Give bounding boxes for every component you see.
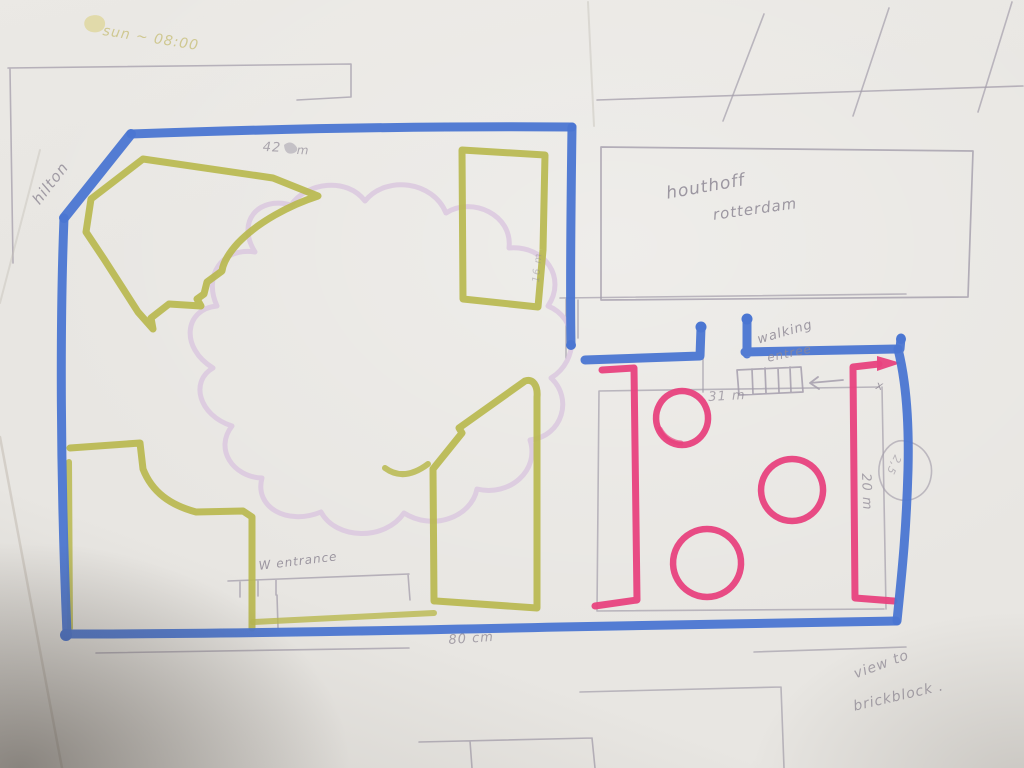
annotation-view-to: view to	[852, 648, 911, 681]
annotation-brickblock: brickblock .	[852, 679, 945, 713]
annotation-layer: sun ~ 08:00hilton42mhouthoffrotterdamwal…	[0, 0, 1024, 768]
annotation-dim-20: 20 m	[859, 473, 873, 511]
annotation-sun-time: sun ~ 08:00	[102, 24, 200, 53]
annotation-walking-2: entree	[766, 343, 813, 364]
photo-of-sketch: sun ~ 08:00hilton42mhouthoffrotterdamwal…	[0, 0, 1024, 768]
annotation-dim-bubble: 2,5	[884, 453, 903, 476]
annotation-x-mark: x	[875, 379, 885, 392]
annotation-hilton: hilton	[30, 160, 72, 207]
annotation-entrance: W entrance	[258, 550, 338, 572]
annotation-dim-80: 80 cm	[448, 631, 494, 647]
annotation-dim-31: 31 m	[708, 389, 746, 404]
annotation-houthoff: houthoff	[665, 172, 747, 203]
annotation-rotterdam: rotterdam	[712, 196, 798, 223]
annotation-dim-42: 42	[263, 141, 282, 155]
annotation-dim-16: 16 m	[532, 252, 545, 282]
annotation-dim-42-unit: m	[297, 144, 310, 156]
